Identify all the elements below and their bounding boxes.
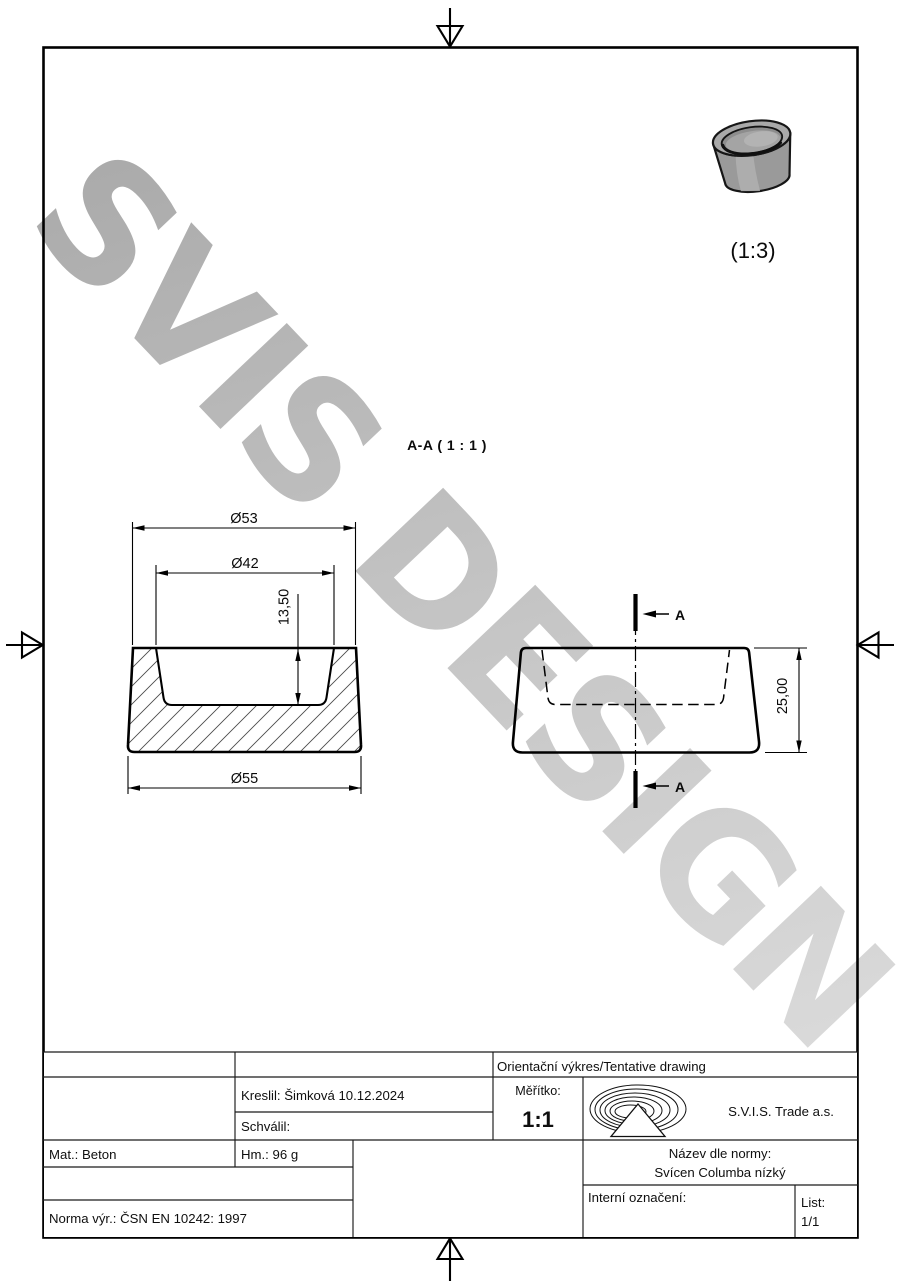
side-view: A A 25,00 — [513, 594, 807, 808]
scale-value: 1:1 — [522, 1107, 554, 1132]
dim-bottom-outer-diameter: Ø55 — [128, 756, 361, 794]
section-cut-line: A A — [636, 594, 686, 808]
drawn-by: Kreslil: Šimková 10.12.2024 — [241, 1088, 404, 1103]
svg-text:Ø53: Ø53 — [230, 511, 257, 527]
section-view-label: A-A ( 1 : 1 ) — [407, 437, 487, 453]
approved-by: Schválil: — [241, 1119, 290, 1134]
drawing-sheet: (1:3) A-A ( 1 : 1 ) Ø53 Ø42 — [0, 0, 900, 1288]
centering-mark-right — [858, 633, 894, 658]
sheet-value: 1/1 — [801, 1214, 819, 1229]
sheet-label: List: — [801, 1195, 825, 1210]
cut-letter-bottom: A — [675, 779, 686, 795]
material: Mat.: Beton — [49, 1147, 116, 1162]
scale-label: Měřítko: — [515, 1084, 561, 1098]
dim-total-height: 25,00 — [754, 648, 807, 753]
dim-top-outer-diameter: Ø53 — [133, 511, 356, 645]
svg-text:Ø55: Ø55 — [231, 771, 258, 787]
svg-text:Ø42: Ø42 — [231, 556, 258, 572]
svg-text:25,00: 25,00 — [775, 678, 791, 714]
name-value: Svícen Columba nízký — [654, 1165, 786, 1180]
production-norm: Norma výr.: ČSN EN 10242: 1997 — [49, 1211, 247, 1226]
dim-inner-diameter: Ø42 — [156, 556, 334, 645]
title-block: Orientační výkres/Tentative drawing Kres… — [43, 1052, 858, 1237]
perspective-view-3d — [711, 116, 798, 197]
centering-mark-left — [6, 633, 43, 658]
centering-mark-top — [438, 8, 463, 47]
weight: Hm.: 96 g — [241, 1147, 298, 1162]
name-label: Název dle normy: — [669, 1146, 772, 1161]
internal-label: Interní označení: — [588, 1190, 686, 1205]
perspective-scale-label: (1:3) — [730, 238, 775, 263]
company-name: S.V.I.S. Trade a.s. — [728, 1104, 834, 1119]
centering-mark-bottom — [438, 1238, 463, 1281]
svg-text:13,50: 13,50 — [277, 589, 293, 625]
doc-type: Orientační výkres/Tentative drawing — [497, 1059, 706, 1074]
cut-letter-top: A — [675, 607, 686, 623]
section-view: Ø53 Ø42 13,50 Ø55 — [127, 511, 362, 794]
section-cavity — [156, 648, 334, 705]
